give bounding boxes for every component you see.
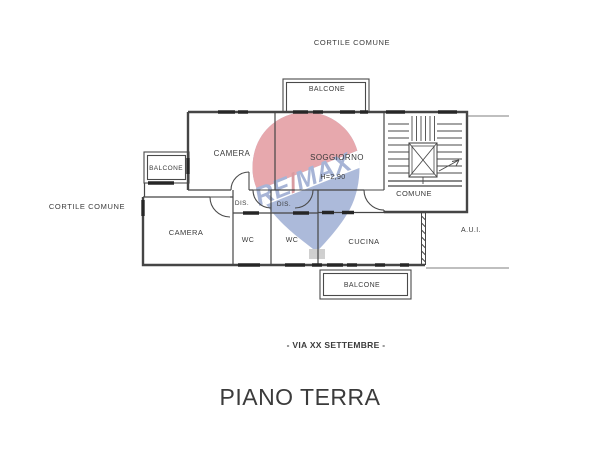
stair-direction-arrow (439, 160, 459, 171)
label-camera-top: CAMERA (214, 149, 251, 158)
label-wc-1: WC (242, 237, 254, 244)
door-camera-top (231, 172, 249, 190)
label-balcone-left: BALCONE (149, 165, 183, 172)
balcony-top-outline (283, 79, 369, 112)
label-cortile-comune-left: CORTILE COMUNE (49, 202, 125, 211)
staircase (388, 116, 462, 184)
label-soggiorno-height: H=2,90 (320, 174, 345, 181)
label-camera-bottom: CAMERA (169, 228, 204, 237)
label-balcone-top: BALCONE (309, 86, 345, 93)
floor-plan-page: RE/MAX (0, 0, 600, 450)
door-comune (364, 190, 384, 210)
remax-balloon-watermark: RE/MAX (240, 95, 372, 259)
stair-treads-left (388, 124, 409, 173)
balloon-basket (309, 249, 325, 259)
hatched-party-wall (422, 212, 426, 265)
stair-treads-top (412, 116, 435, 141)
label-wc-2: WC (286, 237, 298, 244)
label-dis-1: DIS. (235, 200, 249, 207)
label-dis-2: DIS. (277, 201, 291, 208)
label-soggiorno: SOGGIORNO (310, 153, 364, 162)
door-camera-bottom (210, 197, 230, 217)
label-cucina: CUCINA (348, 237, 379, 246)
elevator-shaft (409, 143, 437, 184)
page-title: PIANO TERRA (220, 384, 381, 410)
label-aui: A.U.I. (461, 227, 481, 234)
label-comune: COMUNE (396, 189, 432, 198)
street-caption: - VIA XX SETTEMBRE - (287, 340, 386, 350)
label-cortile-comune-top: CORTILE COMUNE (314, 38, 390, 47)
floor-plan-canvas: RE/MAX (0, 0, 600, 450)
label-balcone-bottom: BALCONE (344, 282, 380, 289)
